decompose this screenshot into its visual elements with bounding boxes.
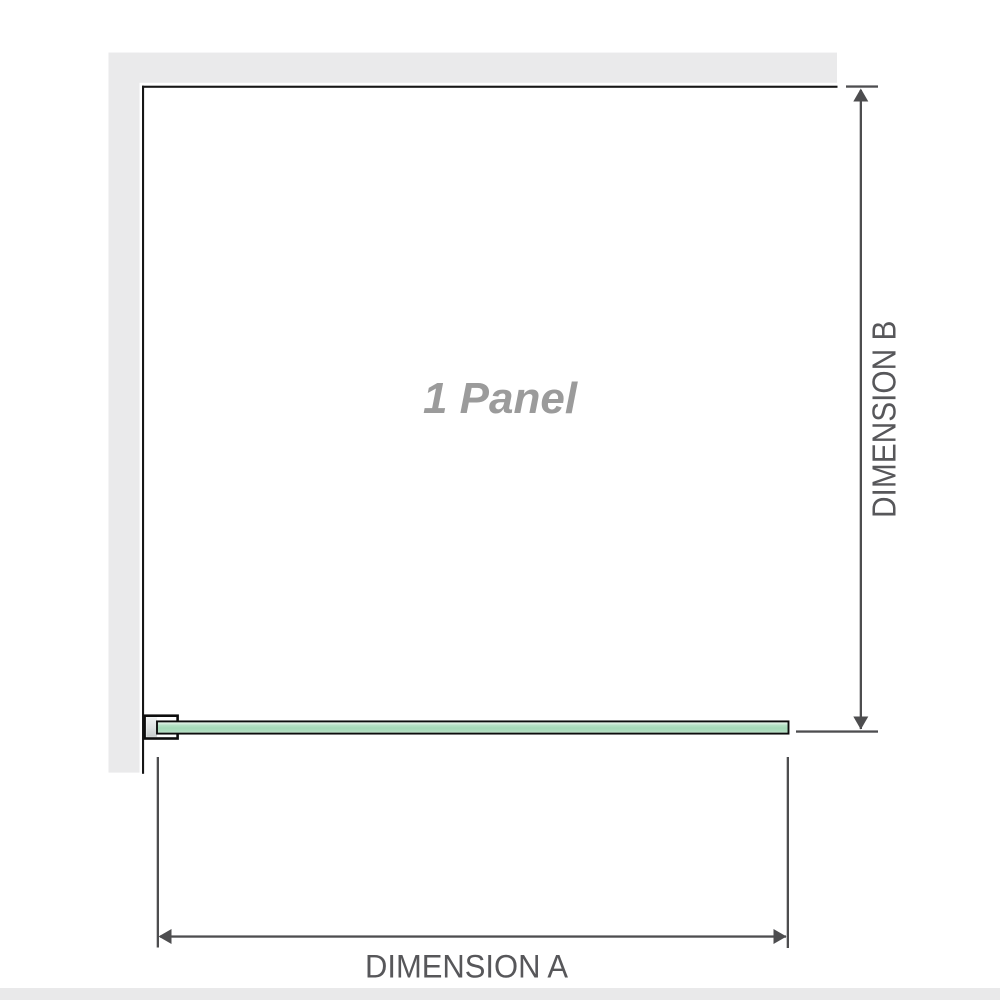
svg-text:1 Panel: 1 Panel xyxy=(423,374,578,423)
svg-text:DIMENSION A: DIMENSION A xyxy=(365,949,569,985)
svg-text:DIMENSION B: DIMENSION B xyxy=(866,321,903,519)
